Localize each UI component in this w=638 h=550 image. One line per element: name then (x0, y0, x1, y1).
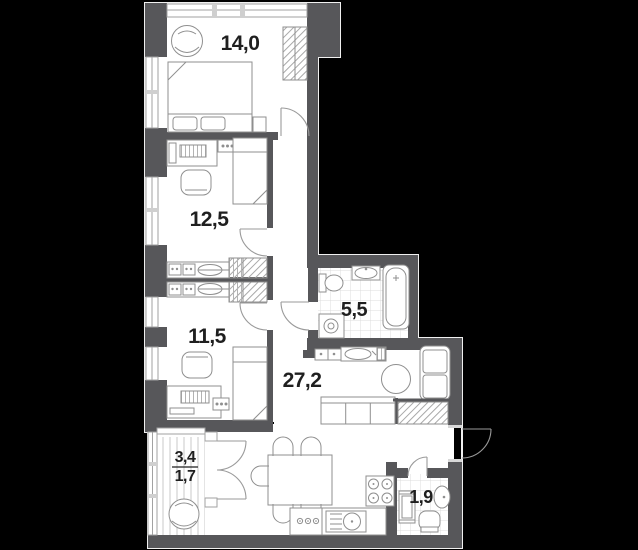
sofa (321, 397, 395, 424)
balcony-chair (169, 499, 199, 529)
single-bed (233, 347, 267, 420)
room-area-label: 12,5 (190, 208, 230, 231)
wardrobe-icon (229, 282, 267, 302)
window (146, 347, 158, 380)
window (146, 297, 158, 327)
office-chair (182, 352, 212, 378)
wardrobe-icon (283, 27, 307, 80)
single-bed (233, 138, 267, 204)
balcony-area-total-label: 3,4 (175, 449, 196, 466)
sideboard (167, 262, 229, 278)
entry-wardrobe-icon (393, 400, 448, 424)
stove-icon (366, 476, 394, 506)
floor-plan-canvas: 14,0 (0, 0, 638, 550)
window (146, 177, 158, 245)
office-chair (181, 170, 211, 195)
kitchen-counter-sink (341, 347, 386, 361)
toilet (419, 511, 440, 532)
entrance-door-arc (448, 425, 491, 462)
small-cabinet (213, 398, 229, 410)
room-area-label: 11,5 (188, 325, 227, 348)
room-area-label: 27,2 (283, 369, 322, 392)
kitchen-drawer-unit (315, 349, 341, 360)
room-area-label: 5,5 (341, 299, 368, 321)
balcony-area-reduced-label: 1,7 (175, 468, 196, 485)
room-area-label: 14,0 (221, 32, 260, 55)
floor-plan-page: 14,0 (0, 0, 638, 550)
armchair (420, 346, 450, 400)
double-bed (168, 62, 266, 132)
bathtub (383, 265, 409, 329)
toilet (319, 274, 343, 292)
coffee-table (382, 365, 411, 394)
armchair (172, 26, 203, 57)
sideboard (167, 282, 229, 297)
bathroom-sink (352, 266, 380, 280)
wardrobe-icon (229, 258, 267, 278)
dining-table (268, 455, 332, 505)
kitchen-lower-counter (290, 508, 386, 535)
room-area-label: 1,9 (409, 487, 433, 507)
window (146, 57, 158, 128)
desk (167, 140, 217, 166)
window (167, 4, 307, 17)
wc-sink (434, 486, 450, 508)
